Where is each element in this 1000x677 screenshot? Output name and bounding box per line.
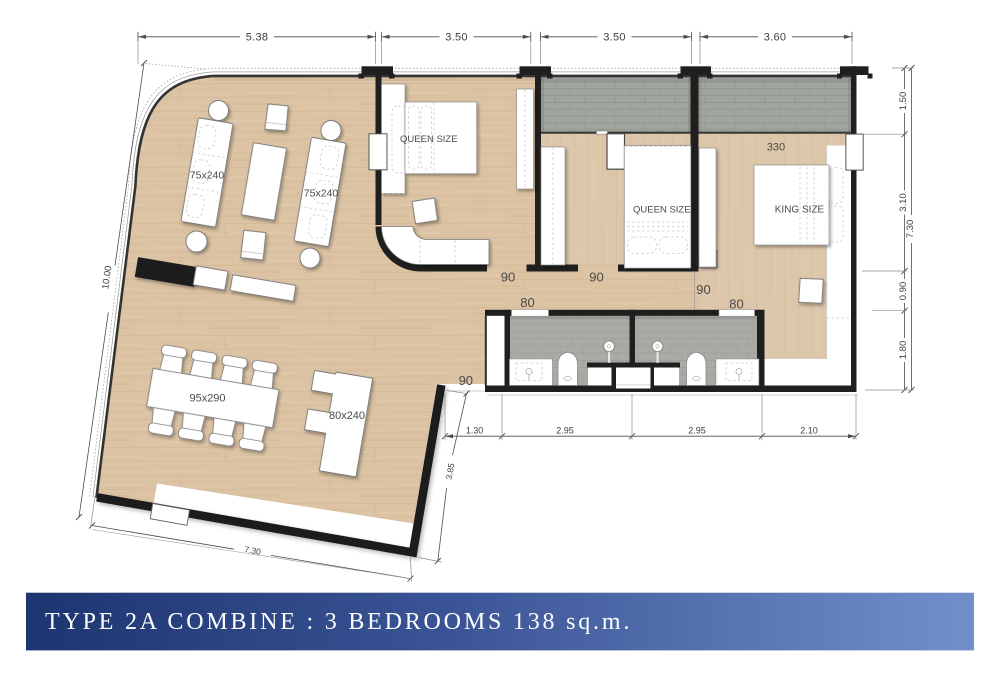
svg-text:1.80: 1.80 (898, 341, 909, 360)
svg-text:7.30: 7.30 (244, 544, 262, 557)
svg-text:95x290: 95x290 (189, 393, 225, 405)
svg-text:330: 330 (767, 142, 785, 154)
svg-text:10.00: 10.00 (100, 265, 114, 290)
svg-text:0.90: 0.90 (898, 282, 909, 301)
svg-text:90: 90 (501, 270, 515, 285)
svg-text:QUEEN SIZE: QUEEN SIZE (400, 134, 458, 145)
svg-text:75x240: 75x240 (304, 188, 339, 200)
svg-text:KING SIZE: KING SIZE (775, 204, 825, 215)
svg-text:3.10: 3.10 (898, 193, 909, 212)
svg-text:TYPE 2A COMBINE : 3 BEDROOMS 1: TYPE 2A COMBINE : 3 BEDROOMS 138 sq.m. (45, 609, 632, 635)
svg-text:3.60: 3.60 (764, 32, 787, 44)
svg-text:3.50: 3.50 (445, 32, 468, 44)
svg-text:80: 80 (520, 295, 534, 310)
svg-text:90: 90 (459, 373, 473, 388)
svg-text:90: 90 (589, 270, 603, 285)
svg-text:7.30: 7.30 (905, 220, 916, 239)
svg-text:5.38: 5.38 (246, 32, 269, 44)
svg-text:80: 80 (729, 297, 743, 312)
svg-text:3.50: 3.50 (603, 32, 626, 44)
svg-text:75x240: 75x240 (190, 170, 225, 182)
svg-text:1.30: 1.30 (466, 426, 484, 436)
svg-text:80x240: 80x240 (329, 410, 365, 422)
svg-text:3.85: 3.85 (444, 462, 457, 480)
svg-text:2.95: 2.95 (556, 426, 574, 436)
svg-text:1.50: 1.50 (898, 92, 909, 111)
svg-text:90: 90 (696, 282, 710, 297)
svg-text:2.10: 2.10 (800, 426, 818, 436)
svg-text:QUEEN SIZE: QUEEN SIZE (633, 204, 691, 215)
svg-text:2.95: 2.95 (688, 426, 706, 436)
